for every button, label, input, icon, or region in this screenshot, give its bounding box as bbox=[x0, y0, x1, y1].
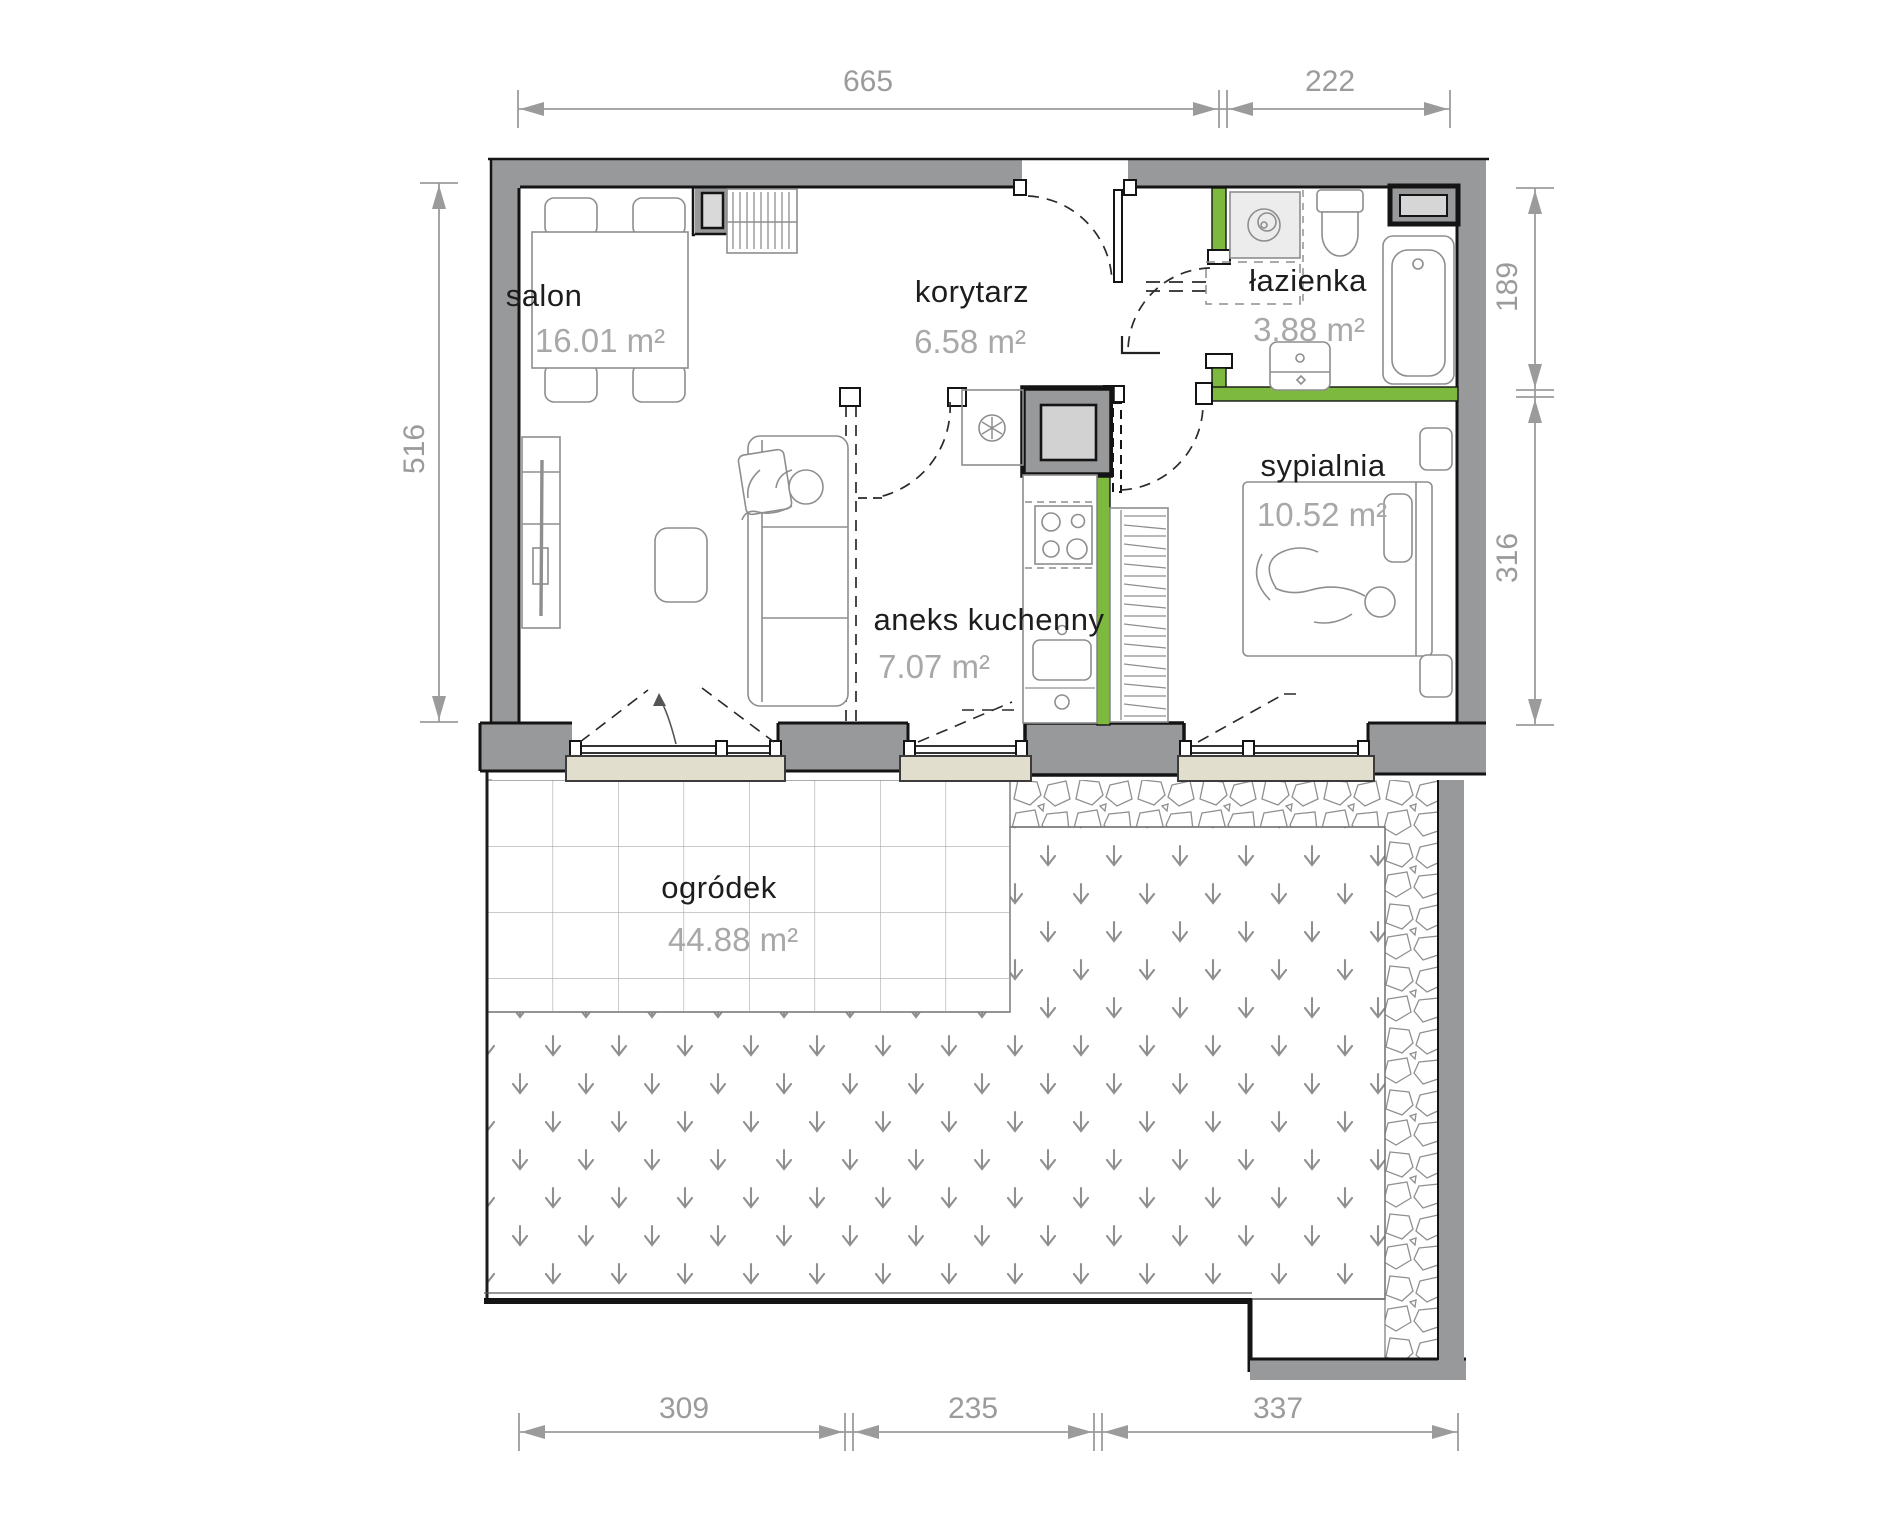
dim-left-516: 516 bbox=[398, 424, 432, 474]
sofa bbox=[738, 436, 848, 706]
bottom-pier-left-corner bbox=[480, 723, 572, 772]
washing-machine bbox=[1230, 192, 1300, 258]
bottom-pier-right-corner bbox=[1368, 723, 1486, 775]
tv-icon bbox=[541, 460, 542, 616]
room-label-sypialnia: sypialnia bbox=[1260, 448, 1385, 484]
dim-bottom-309: 309 bbox=[659, 1392, 709, 1426]
chair bbox=[633, 198, 685, 236]
kitchen-wall bbox=[1097, 473, 1110, 725]
room-area-lazienka: 3.88 m² bbox=[1253, 311, 1365, 349]
chair bbox=[633, 364, 685, 402]
coffee-table bbox=[655, 528, 707, 602]
nightstand bbox=[1420, 655, 1452, 697]
tv-stand bbox=[522, 437, 560, 628]
garden-area bbox=[484, 772, 1466, 1380]
dim-bottom-235: 235 bbox=[948, 1392, 998, 1426]
chair bbox=[545, 364, 597, 402]
garden-bottom-wall bbox=[1250, 1360, 1466, 1380]
room-area-sypialnia: 10.52 m² bbox=[1257, 496, 1387, 534]
dim-right-189: 189 bbox=[1491, 262, 1525, 312]
room-area-aneks-kuchenny: 7.07 m² bbox=[878, 648, 990, 686]
room-label-aneks-kuchenny: aneks kuchenny bbox=[873, 602, 1104, 638]
kitchen-sill bbox=[900, 756, 1031, 781]
bedroom-door-jamb-right bbox=[1196, 383, 1212, 404]
bathroom-wall-upper bbox=[1212, 188, 1226, 252]
left-wall bbox=[492, 188, 520, 723]
bathroom-door-jamb-bottom bbox=[1206, 354, 1232, 368]
dim-bottom-337: 337 bbox=[1253, 1392, 1303, 1426]
room-area-ogrodek: 44.88 m² bbox=[668, 921, 798, 959]
room-label-ogrodek: ogródek bbox=[661, 870, 777, 906]
bottom-pier-kitchen bbox=[1025, 723, 1184, 776]
top-wall-left bbox=[492, 160, 1022, 188]
chair bbox=[545, 198, 597, 236]
flue-box bbox=[702, 193, 723, 228]
nightstand bbox=[1420, 428, 1452, 470]
room-label-salon: salon bbox=[506, 278, 583, 314]
room-area-korytarz: 6.58 m² bbox=[914, 323, 1026, 361]
bedroom-wardrobe bbox=[1110, 508, 1168, 722]
entrance-door-leaf bbox=[1114, 190, 1122, 282]
dim-top-222: 222 bbox=[1305, 65, 1355, 99]
bathroom-bedroom-wall bbox=[1212, 387, 1458, 401]
kitchen-opening-jamb-left bbox=[840, 388, 860, 406]
entrance-jamb-right bbox=[1124, 180, 1136, 195]
kitchen-counter bbox=[1023, 475, 1097, 723]
bottom-pier-middle bbox=[778, 723, 908, 772]
bedroom-sill bbox=[1178, 756, 1374, 781]
floor-plan-page: salon 16.01 m² korytarz 6.58 m² łazienka… bbox=[0, 0, 1900, 1520]
room-label-korytarz: korytarz bbox=[915, 274, 1029, 310]
bedroom-door-leaf bbox=[1113, 403, 1121, 492]
right-wall bbox=[1458, 188, 1486, 723]
kitchen-shaft-inner bbox=[1041, 405, 1096, 460]
salon-sill bbox=[566, 756, 785, 781]
garden-right-wall bbox=[1438, 775, 1464, 1362]
corridor-wardrobe bbox=[727, 189, 797, 253]
dim-right-316: 316 bbox=[1491, 533, 1525, 583]
bathroom-sink bbox=[1270, 342, 1330, 390]
bathroom-shaft-inner bbox=[1400, 195, 1447, 216]
room-label-lazienka: łazienka bbox=[1249, 263, 1367, 299]
floor-plan-drawing bbox=[0, 0, 1900, 1520]
entrance-jamb-left bbox=[1014, 180, 1026, 195]
bathtub bbox=[1383, 236, 1454, 384]
room-area-salon: 16.01 m² bbox=[535, 322, 665, 360]
dim-top-665: 665 bbox=[843, 65, 893, 99]
